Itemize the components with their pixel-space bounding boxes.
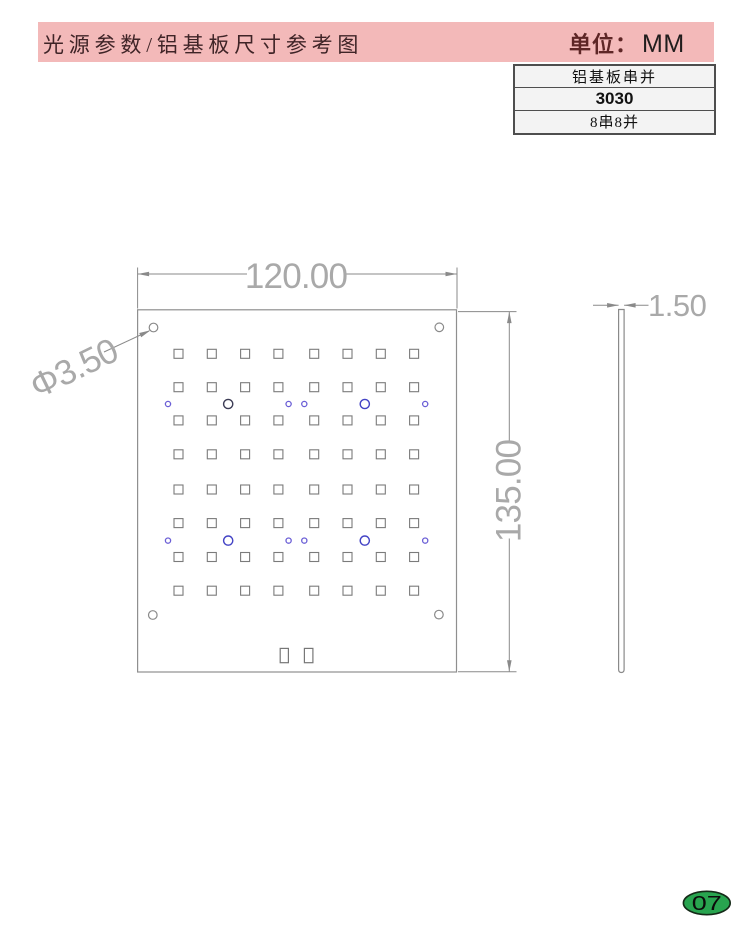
svg-text:135.00: 135.00 (490, 440, 529, 543)
svg-text:07: 07 (692, 893, 722, 915)
svg-text:1.50: 1.50 (648, 288, 707, 323)
svg-text:Φ3.50: Φ3.50 (24, 331, 124, 407)
svg-text:120.00: 120.00 (245, 257, 348, 296)
